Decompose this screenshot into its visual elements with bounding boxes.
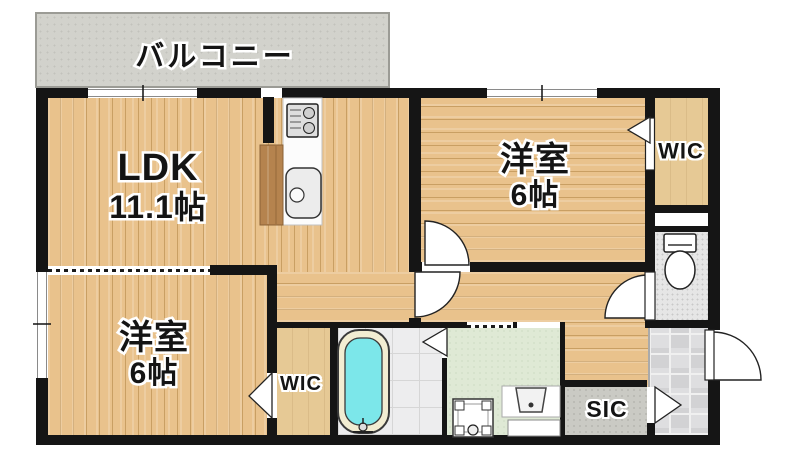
wall-segment (282, 88, 487, 98)
kitchen-wall-stub (263, 95, 274, 143)
ldk-name: LDK (109, 147, 207, 190)
ldk-floor (48, 98, 409, 272)
hallway-floor (277, 272, 645, 322)
wall-segment (645, 320, 720, 328)
wall-segment (645, 232, 655, 272)
bedroom-upper-label: 洋室 6帖 (500, 141, 570, 213)
floorplan: バルコニー LDK 11.1帖 洋室 6帖 WIC 洋室 6帖 WIC SIC (0, 0, 800, 463)
wall-segment (565, 380, 647, 387)
ldk-label: LDK 11.1帖 (109, 147, 207, 225)
window-ldk-balcony (88, 89, 197, 97)
wall-segment (36, 435, 720, 445)
bedroom-lower-area: 6帖 (119, 357, 189, 391)
washroom-opening (517, 322, 560, 328)
bedroom-upper-name: 洋室 (500, 141, 570, 179)
door-leaf-toilet (645, 272, 655, 320)
toilet-floor (655, 232, 708, 320)
sic-door-opening (647, 387, 655, 423)
door-entrance (713, 332, 761, 380)
wall-segment (36, 98, 48, 272)
wall-segment (197, 88, 261, 98)
door-leaf-wic-upper (646, 118, 655, 170)
balcony-label: バルコニー (135, 41, 294, 73)
wall-segment (267, 265, 277, 373)
wall-segment (597, 88, 720, 98)
bedroom-lower-name: 洋室 (119, 319, 189, 357)
window-bedroom-upper (487, 89, 597, 97)
wall-segment (560, 322, 565, 435)
bathroom-floor (338, 328, 442, 435)
wall-segment (470, 262, 650, 272)
washroom-sliding-door (467, 322, 513, 328)
ldk-partition-accordion (48, 266, 210, 275)
bedroom-upper-area: 6帖 (500, 179, 570, 213)
ldk-area: 11.1帖 (109, 189, 207, 225)
wall-segment (447, 322, 467, 328)
window-wic-toilet (655, 213, 708, 226)
wall-segment (645, 226, 720, 232)
hallway-lower-floor (565, 322, 649, 387)
wall-segment (409, 98, 421, 272)
wall-segment (267, 418, 277, 435)
wall-segment (647, 423, 655, 435)
wall-segment (409, 262, 422, 272)
window-bedroom-lower (37, 272, 47, 378)
wall-segment (330, 328, 338, 435)
wic-lower-label: WIC (280, 373, 322, 395)
entrance-floor (649, 328, 708, 435)
wall-segment (645, 205, 720, 213)
bedroom-lower-label: 洋室 6帖 (119, 319, 189, 391)
wall-segment (36, 88, 88, 98)
wall-segment (708, 98, 720, 330)
wall-segment (267, 322, 447, 328)
wic-upper-label: WIC (658, 140, 704, 165)
entrance-step-line (648, 328, 650, 387)
wall-segment (645, 98, 655, 118)
washroom-floor (447, 328, 560, 435)
sic-label: SIC (586, 397, 627, 423)
wall-segment (442, 358, 447, 435)
kitchen-pass-opening (261, 89, 282, 97)
